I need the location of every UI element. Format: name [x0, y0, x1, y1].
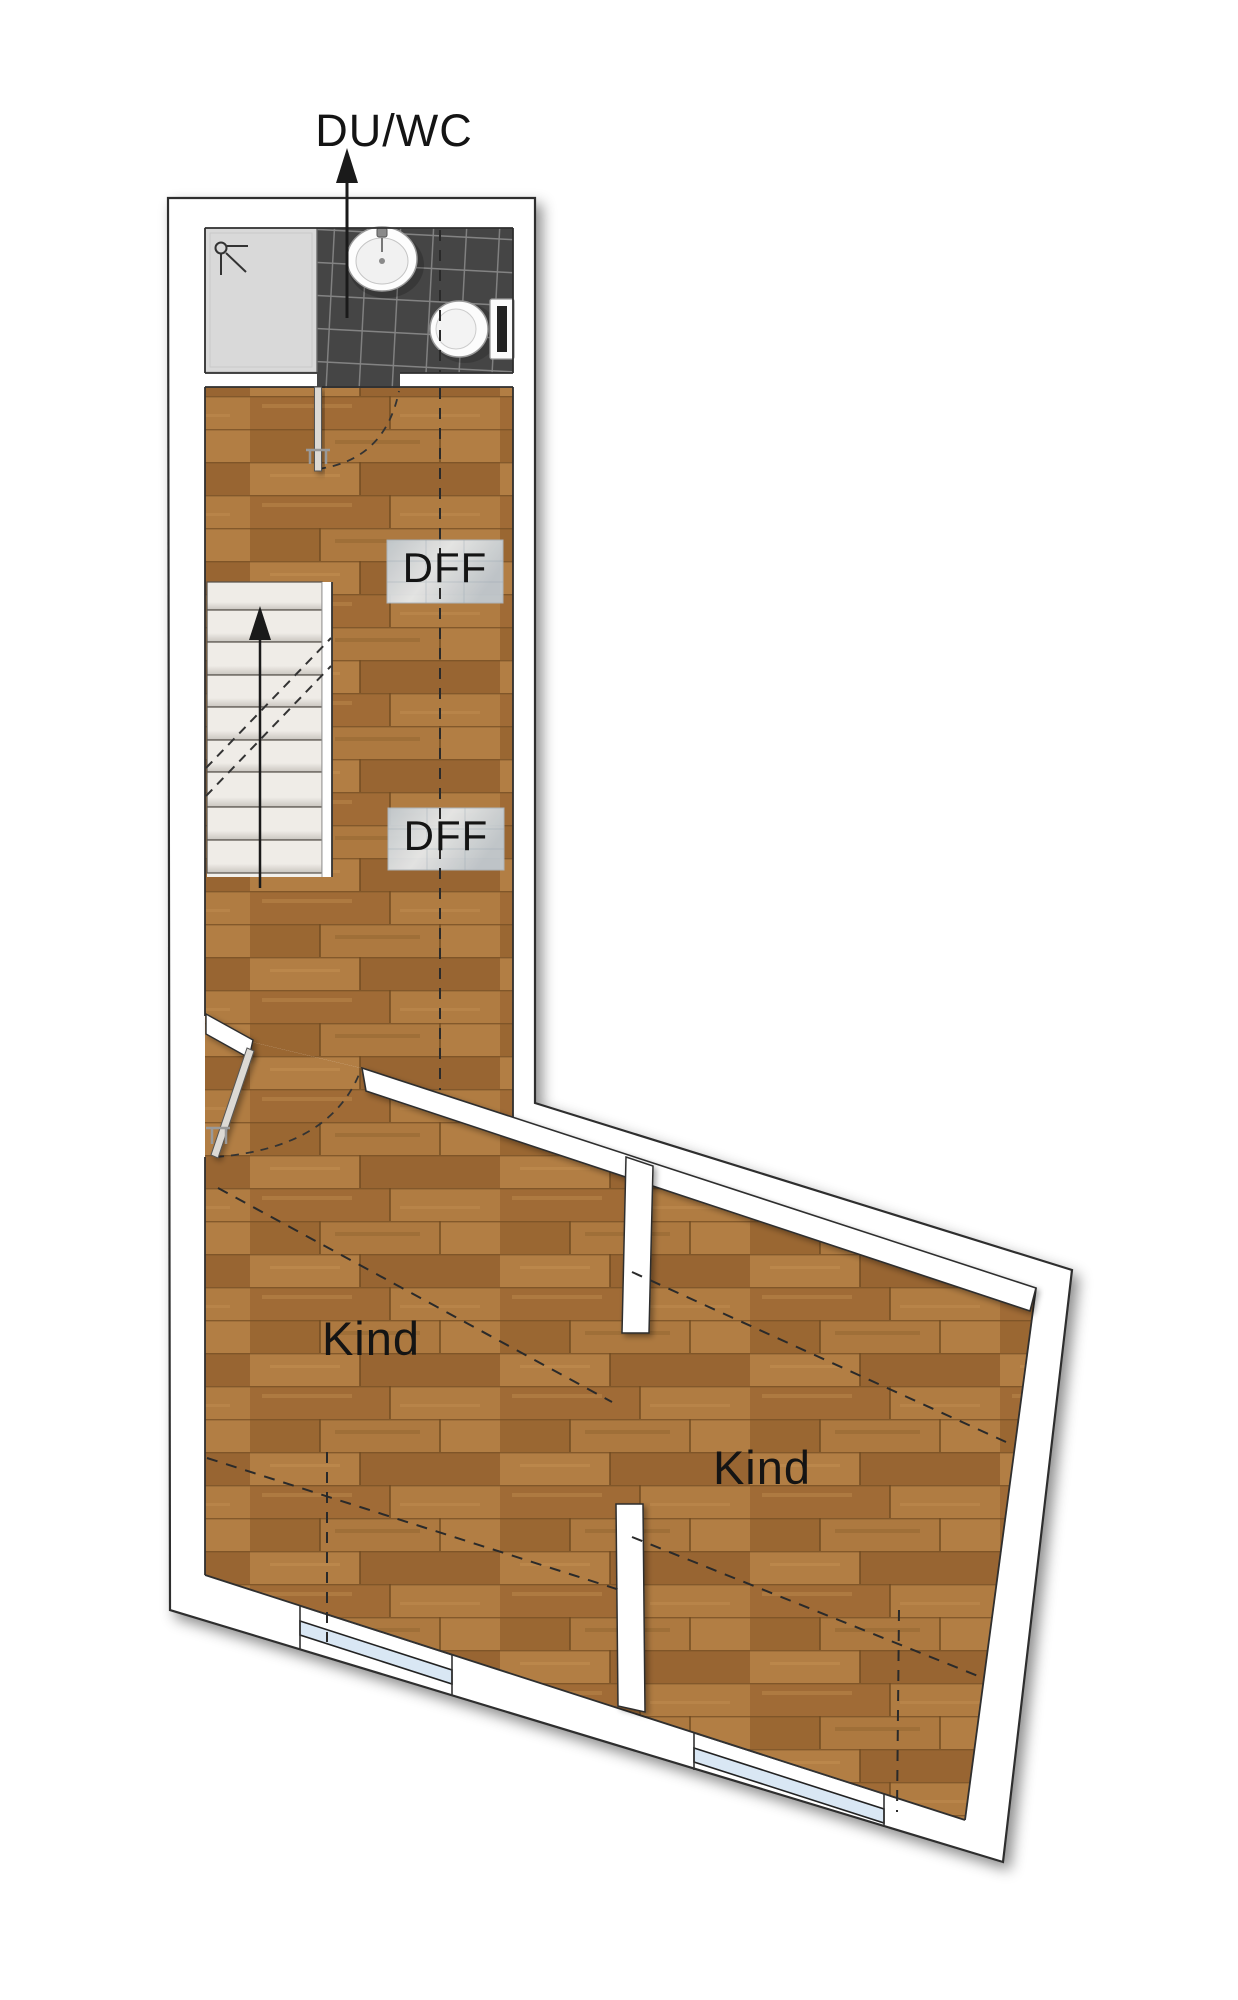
label-room-kind-right: Kind [692, 1442, 832, 1494]
staircase [206, 582, 332, 888]
partition-wall-lower [616, 1504, 645, 1712]
door-threshold [317, 372, 400, 388]
floor-plan-drawing [0, 0, 1238, 2000]
stair-stringer [322, 582, 332, 877]
floor-plan-page: DU/WC DFF DFF Kind Kind [0, 0, 1238, 2000]
shower-tray [205, 228, 317, 372]
label-bathroom: DU/WC [296, 106, 492, 156]
partition-wall-upper [622, 1157, 653, 1333]
bathroom-door-leaf [315, 387, 322, 471]
bathroom [205, 227, 514, 373]
label-skylight-upper: DFF [387, 545, 503, 591]
toilet-icon [430, 299, 514, 363]
label-room-kind-left: Kind [301, 1313, 441, 1365]
label-skylight-lower: DFF [388, 813, 504, 859]
